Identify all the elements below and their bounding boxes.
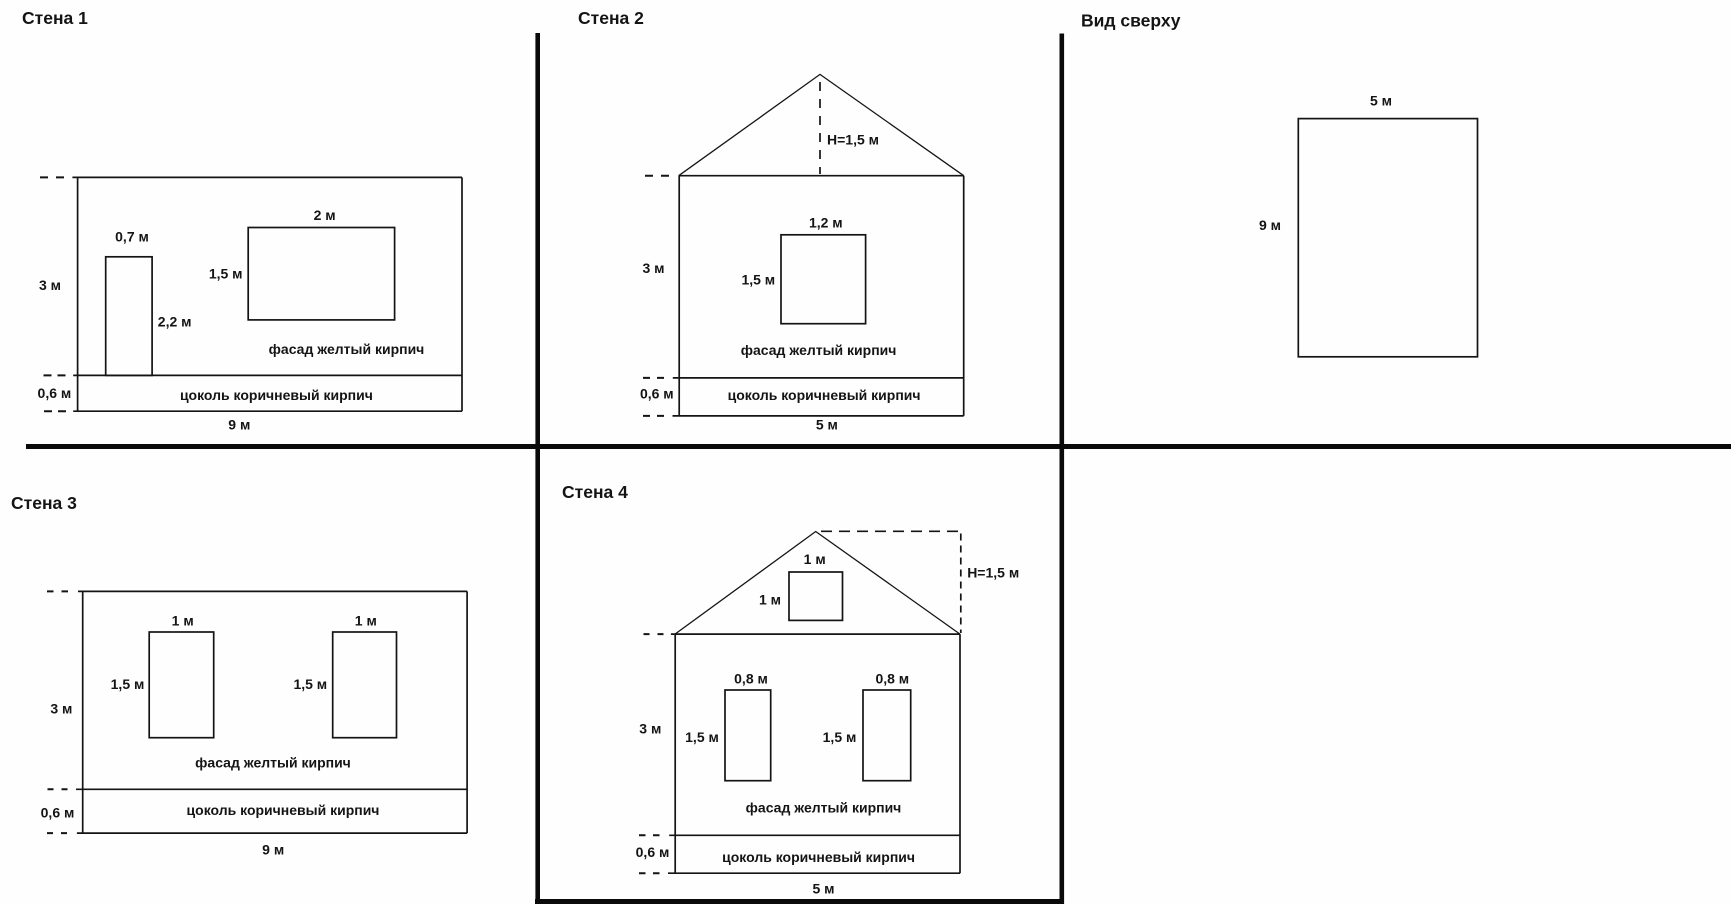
svg-text:фасад желтый кирпич: фасад желтый кирпич: [741, 342, 897, 358]
svg-text:1,5 м: 1,5 м: [741, 272, 775, 288]
svg-text:Стена 1: Стена 1: [22, 8, 88, 28]
svg-text:9 м: 9 м: [262, 842, 284, 858]
svg-text:5 м: 5 м: [812, 881, 834, 897]
svg-text:1,2 м: 1,2 м: [809, 215, 843, 231]
svg-text:Вид сверху: Вид сверху: [1081, 11, 1181, 31]
svg-text:3 м: 3 м: [642, 260, 664, 276]
svg-text:0,6 м: 0,6 м: [636, 844, 670, 860]
svg-text:2 м: 2 м: [314, 207, 336, 223]
svg-text:1 м: 1 м: [759, 592, 781, 608]
svg-text:фасад желтый кирпич: фасад желтый кирпич: [269, 341, 425, 357]
svg-text:1,5 м: 1,5 м: [111, 676, 145, 692]
svg-text:0,6 м: 0,6 м: [41, 805, 75, 821]
svg-text:1,5 м: 1,5 м: [823, 729, 857, 745]
svg-text:Стена 3: Стена 3: [11, 493, 77, 513]
svg-text:3 м: 3 м: [639, 721, 661, 737]
svg-text:1,5 м: 1,5 м: [293, 676, 327, 692]
svg-text:0,7 м: 0,7 м: [115, 229, 149, 245]
svg-text:9 м: 9 м: [1259, 217, 1281, 233]
svg-text:3 м: 3 м: [39, 277, 61, 293]
svg-text:цоколь коричневый кирпич: цоколь коричневый кирпич: [180, 387, 373, 403]
svg-text:0,6 м: 0,6 м: [640, 386, 674, 402]
svg-text:Стена 2: Стена 2: [578, 8, 644, 28]
svg-text:1 м: 1 м: [172, 613, 194, 629]
svg-text:5 м: 5 м: [1370, 93, 1392, 109]
svg-text:3 м: 3 м: [50, 701, 72, 717]
svg-text:0,8 м: 0,8 м: [875, 671, 909, 687]
svg-text:H=1,5 м: H=1,5 м: [827, 132, 879, 148]
svg-text:5 м: 5 м: [816, 417, 838, 433]
svg-text:1,5 м: 1,5 м: [209, 266, 243, 282]
svg-text:0,8 м: 0,8 м: [734, 671, 768, 687]
svg-text:1 м: 1 м: [355, 613, 377, 629]
svg-text:0,6 м: 0,6 м: [38, 385, 72, 401]
svg-text:1 м: 1 м: [804, 551, 826, 567]
svg-text:цоколь коричневый кирпич: цоколь коричневый кирпич: [187, 802, 380, 818]
svg-text:цоколь коричневый кирпич: цоколь коричневый кирпич: [722, 849, 915, 865]
svg-text:9 м: 9 м: [228, 417, 250, 433]
svg-text:1,5 м: 1,5 м: [685, 729, 719, 745]
svg-text:H=1,5 м: H=1,5 м: [967, 565, 1019, 581]
svg-text:Стена 4: Стена 4: [562, 482, 628, 502]
svg-text:фасад желтый кирпич: фасад желтый кирпич: [195, 755, 351, 771]
svg-text:цоколь коричневый кирпич: цоколь коричневый кирпич: [728, 387, 921, 403]
svg-text:2,2 м: 2,2 м: [158, 314, 192, 330]
svg-text:фасад желтый кирпич: фасад желтый кирпич: [746, 800, 902, 816]
